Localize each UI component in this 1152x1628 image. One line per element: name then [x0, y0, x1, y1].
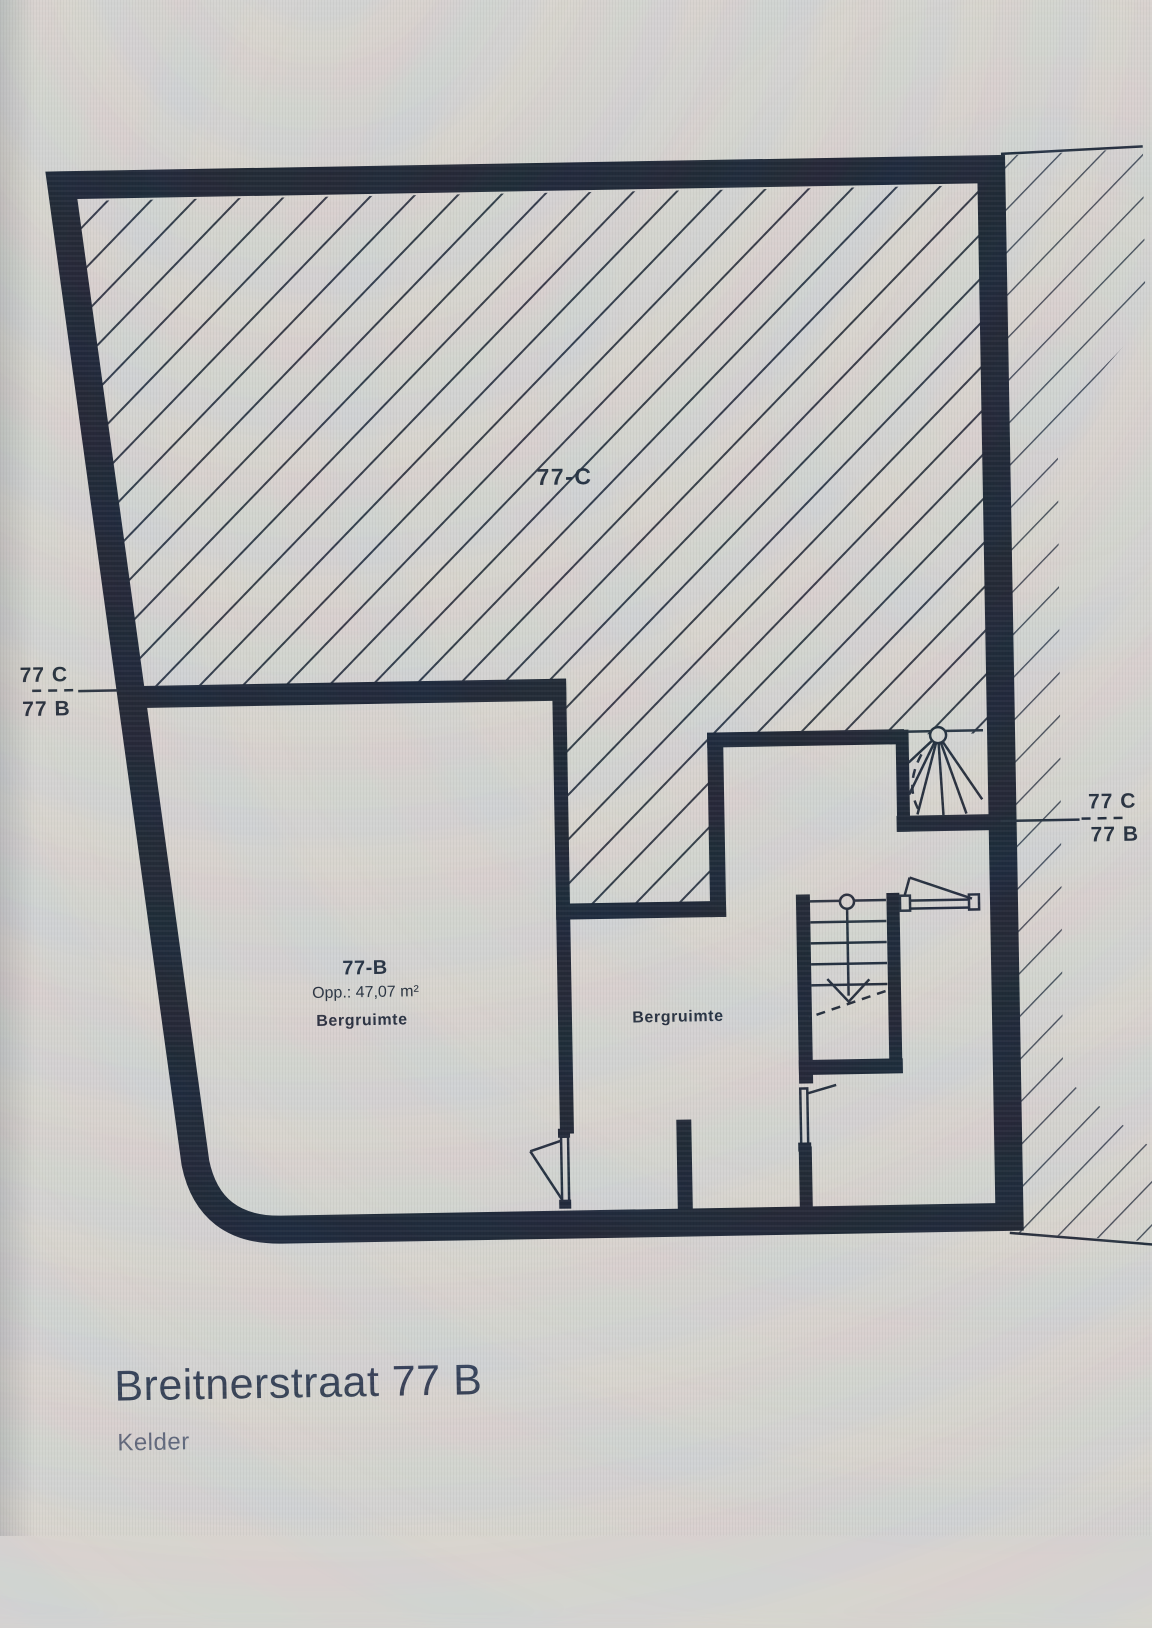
section-marker-left: 77 C 77 B [20, 662, 119, 721]
wall-stair-left [803, 894, 806, 1083]
door-swing [905, 878, 910, 895]
wall-middle-vertical [715, 733, 718, 917]
door-swing [530, 1141, 561, 1152]
unit-c-hatch [78, 185, 992, 916]
unit-b-area-label: Opp.: 47,07 m² [312, 983, 420, 1002]
door-hinge-block [558, 1129, 570, 1138]
marker-left-bottom-label: 77 B [22, 697, 71, 721]
unit-b-label: 77-B [342, 957, 388, 980]
photographed-screen: { "plan": { "title": "Breitnerstraat 77 … [0, 0, 1152, 1536]
floor-plan-sheet: 77 C 77 B 77 C 77 B 77-C 77-B Opp.: 47,0… [0, 0, 1152, 1546]
page-title: Breitnerstraat 77 B [114, 1356, 483, 1411]
door-hinge-block [798, 1142, 811, 1151]
door-threshold-line [902, 907, 978, 908]
wall-door-stub-right [805, 1146, 806, 1218]
wall-middle-horizontal [556, 909, 726, 912]
marker-left-leader [78, 690, 118, 691]
page-subtitle: Kelder [117, 1428, 190, 1457]
door-swing [530, 1151, 562, 1201]
winder-tread [938, 734, 982, 800]
winder-stair [908, 726, 985, 815]
doors [526, 876, 985, 1209]
door-swing [807, 1085, 836, 1094]
unit-b-room-label: Bergruimte [316, 1011, 408, 1030]
stair-newel-post [840, 895, 854, 909]
marker-right-bottom-label: 77 B [1090, 823, 1139, 847]
marker-left-dash [32, 690, 76, 691]
winder-newel-post [930, 727, 946, 743]
wall-upper-horizontal [707, 737, 904, 740]
middle-room-label: Bergruimte [632, 1008, 724, 1027]
wall-stair-bottom [799, 1066, 903, 1068]
unit-c-label: 77-C [536, 463, 592, 490]
door-frame-block [969, 894, 979, 909]
door-leaf-77b [561, 1137, 569, 1203]
door-threshold-line [902, 899, 978, 900]
wall-winder-bottom [897, 822, 1007, 824]
stair-cut-line [809, 991, 886, 1017]
marker-right-dash [1082, 818, 1125, 819]
marker-left-top-label: 77 C [20, 663, 69, 687]
door-frame-block [900, 896, 910, 911]
stair-handrail [847, 902, 849, 996]
wall-77b-top [134, 690, 566, 698]
staircase [807, 894, 888, 1017]
marker-right-top-label: 77 C [1088, 790, 1137, 814]
door-leaf-open [910, 877, 972, 900]
floor-plan-drawing: 77 C 77 B 77 C 77 B 77-C 77-B Opp.: 47,0… [0, 0, 1152, 1546]
wall-stub-bottom [684, 1120, 686, 1229]
marker-right-leader [1001, 820, 1080, 821]
wall-stair-right [893, 893, 896, 1066]
door-hinge-block [559, 1200, 571, 1209]
door-leaf-stair [800, 1088, 808, 1146]
